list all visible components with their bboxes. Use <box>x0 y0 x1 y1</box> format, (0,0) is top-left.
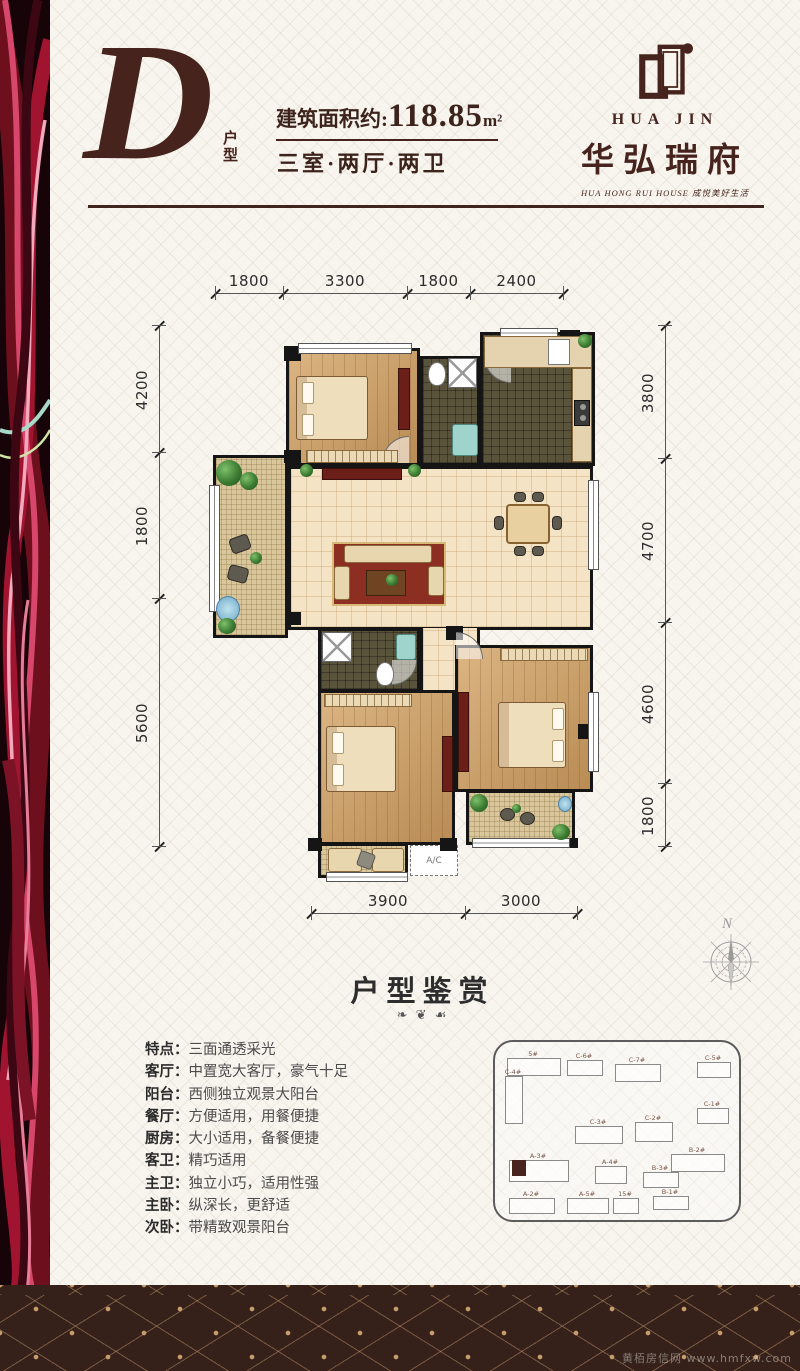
toilet-icon <box>376 662 394 686</box>
dim-line <box>665 325 666 846</box>
dining-table <box>506 504 550 544</box>
dresser <box>442 736 453 792</box>
dim-ext <box>658 622 672 623</box>
pond-icon <box>558 796 572 812</box>
vanity-icon <box>396 634 416 660</box>
feature-label: 主卧： <box>145 1198 189 1214</box>
dim-ext <box>152 325 166 326</box>
feature-row: 客卫：精巧适用 <box>145 1149 475 1171</box>
feature-label: 餐厅： <box>145 1109 189 1125</box>
siteplan-building-label: C-7# <box>629 1056 645 1064</box>
dim-label: 3800 <box>639 369 657 417</box>
left-art-strip <box>0 0 50 1300</box>
dim-label: 4600 <box>639 680 657 728</box>
siteplan-building <box>653 1196 689 1210</box>
wall-block <box>286 612 301 625</box>
siteplan-building-label: A-2# <box>523 1190 539 1198</box>
tv-cabinet <box>398 368 410 430</box>
feature-text: 独立小巧，适用性强 <box>189 1176 320 1192</box>
balcony-seat <box>372 848 404 872</box>
dim-ext <box>658 846 672 847</box>
dresser <box>458 692 469 772</box>
unit-type-letter: D <box>83 18 214 186</box>
plant-icon <box>240 472 258 490</box>
dimension-right: 3800470046001800 <box>648 325 676 846</box>
siteplan-building-label: C-2# <box>645 1114 661 1122</box>
siteplan-building <box>697 1108 729 1124</box>
feature-text: 方便适用，用餐便捷 <box>189 1109 320 1125</box>
feature-row: 次卧：带精致观景阳台 <box>145 1216 475 1238</box>
pillow <box>302 414 314 436</box>
siteplan-building-label: C-6# <box>576 1052 592 1060</box>
huajin-logo-icon <box>630 38 700 108</box>
pillow <box>552 740 564 762</box>
brand-name-en: HUA JIN <box>560 111 770 129</box>
siteplan-building <box>697 1062 731 1078</box>
siteplan-building-label: A-4# <box>602 1158 618 1166</box>
plant-icon <box>512 804 521 813</box>
siteplan-building <box>643 1172 679 1188</box>
dim-label: 1800 <box>407 272 470 290</box>
kitchen-counter <box>484 336 592 368</box>
dim-label: 4700 <box>639 517 657 565</box>
sofa-side <box>334 566 350 600</box>
dining-chair <box>514 546 526 556</box>
siteplan-building-label: C-5# <box>705 1054 721 1062</box>
area-prefix: 建筑面积约: <box>276 107 388 131</box>
window <box>588 480 599 570</box>
feature-label: 主卫： <box>145 1176 189 1192</box>
wardrobe <box>324 694 412 707</box>
siteplan-building-label: C-3# <box>590 1118 606 1126</box>
plant-icon <box>408 464 421 477</box>
window <box>472 838 570 848</box>
feature-text: 中置宽大客厅，豪气十足 <box>189 1064 349 1080</box>
dining-chair <box>514 492 526 502</box>
plant-icon <box>218 618 236 634</box>
ornament-flourish: ❧ ❦ ☙ <box>75 1008 770 1023</box>
siteplan-building <box>615 1064 661 1082</box>
dimension-left: 420018005600 <box>142 325 170 846</box>
balcony-chair <box>520 812 535 825</box>
dim-label: 1800 <box>639 792 657 840</box>
window <box>209 485 220 612</box>
plant-icon <box>470 794 488 812</box>
dining-chair <box>552 516 562 530</box>
layout-text: 三室·两厅·两卫 <box>277 146 448 178</box>
dim-ext <box>563 286 564 300</box>
siteplan-building <box>509 1198 555 1214</box>
dim-label: 1800 <box>215 272 283 290</box>
siteplan-building <box>671 1154 725 1172</box>
toilet-icon <box>428 362 446 386</box>
pillow <box>332 764 344 786</box>
siteplan-building <box>567 1060 603 1076</box>
feature-label: 特点： <box>145 1042 189 1058</box>
dim-label: 4200 <box>133 366 151 414</box>
header-divider <box>88 205 764 208</box>
feature-text: 带精致观景阳台 <box>189 1220 291 1236</box>
dim-label: 1800 <box>133 502 151 550</box>
section-title: 户型鉴赏 <box>75 968 770 1010</box>
window <box>588 692 599 772</box>
siteplan-building-label: B-1# <box>662 1188 678 1196</box>
dim-label: 5600 <box>133 699 151 747</box>
dining-chair <box>494 516 504 530</box>
feature-label: 客厅： <box>145 1064 189 1080</box>
watermark: 黄栢房信网 www.hmfxw.com <box>622 1350 792 1366</box>
brand-block: HUA JIN 华弘瑞府 HUA HONG RUI HOUSE 成悦美好生活 <box>560 38 770 199</box>
wall-block <box>440 838 457 851</box>
dim-ext <box>658 325 672 326</box>
siteplan-building-label: C-1# <box>704 1100 720 1108</box>
plant-icon <box>386 574 398 586</box>
siteplan-building <box>613 1198 639 1214</box>
dim-label: 3900 <box>311 892 465 910</box>
pillow <box>332 732 344 754</box>
dimension-bottom: 39003000 <box>311 892 577 920</box>
fridge-icon <box>548 339 570 365</box>
footer-band: 黄栢房信网 www.hmfxw.com <box>0 1285 800 1371</box>
feature-label: 客卫： <box>145 1153 189 1169</box>
siteplan-building-label: A-5# <box>579 1190 595 1198</box>
feature-text: 纵深长，更舒适 <box>189 1198 291 1214</box>
dim-line <box>311 913 577 914</box>
siteplan-building-label: A-3# <box>530 1152 546 1160</box>
feature-label: 厨房： <box>145 1131 189 1147</box>
sofa-main <box>344 545 432 563</box>
dimension-top: 1800330018002400 <box>215 272 577 300</box>
siteplan-building-label: B-2# <box>689 1146 705 1154</box>
dim-label: 2400 <box>470 272 563 290</box>
stove-icon <box>574 400 590 426</box>
dim-ext <box>152 598 166 599</box>
area-underline <box>276 139 498 141</box>
feature-row: 主卫：独立小巧，适用性强 <box>145 1172 475 1194</box>
dining-chair <box>532 492 544 502</box>
dim-ext <box>658 458 672 459</box>
vanity-icon <box>452 424 478 456</box>
plant-icon <box>300 464 313 477</box>
pillow <box>302 382 314 404</box>
siteplan-building-label: 5# <box>528 1050 538 1058</box>
wardrobe <box>500 648 588 661</box>
wall-block <box>284 450 301 463</box>
abstract-art <box>0 0 50 1300</box>
window <box>298 343 412 354</box>
dining-chair <box>532 546 544 556</box>
dim-line <box>159 325 160 846</box>
feature-text: 西侧独立观景大阳台 <box>189 1087 320 1103</box>
siteplan-building <box>595 1166 627 1184</box>
siteplan-building-label: 15# <box>618 1190 632 1198</box>
feature-row: 客厅：中置宽大客厅，豪气十足 <box>145 1060 475 1082</box>
dim-ext <box>577 906 578 920</box>
dim-line <box>215 293 563 294</box>
area-block: 建筑面积约:118.85m² <box>276 98 502 135</box>
plant-icon <box>250 552 262 564</box>
brand-name-cn: 华弘瑞府 <box>560 133 770 181</box>
plant-icon <box>552 824 570 840</box>
siteplan-building <box>575 1126 623 1144</box>
plant-icon <box>216 460 242 486</box>
siteplan-building <box>567 1198 609 1214</box>
siteplan-building <box>505 1076 523 1124</box>
dim-label: 3300 <box>283 272 407 290</box>
siteplan-building-highlighted <box>512 1160 526 1176</box>
feature-text: 三面通透采光 <box>189 1042 276 1058</box>
siteplan-building-label: B-3# <box>652 1164 668 1172</box>
area-unit: m² <box>483 111 502 130</box>
dim-ext <box>152 846 166 847</box>
shower-icon <box>448 358 477 388</box>
unit-type-label: 户型 <box>221 130 239 164</box>
pillow <box>552 708 564 730</box>
dim-ext <box>658 783 672 784</box>
area-value: 118.85 <box>388 98 483 134</box>
feature-row: 阳台：西侧独立观景大阳台 <box>145 1083 475 1105</box>
shower-icon <box>322 632 352 662</box>
feature-row: 厨房：大小适用，备餐便捷 <box>145 1127 475 1149</box>
plant-icon <box>578 334 592 348</box>
window <box>326 872 408 882</box>
feature-row: 特点：三面通透采光 <box>145 1038 475 1060</box>
feature-label: 次卧： <box>145 1220 189 1236</box>
feature-row: 主卧：纵深长，更舒适 <box>145 1194 475 1216</box>
siteplan-building <box>635 1122 673 1142</box>
dim-label: 3000 <box>465 892 577 910</box>
brand-tagline: HUA HONG RUI HOUSE 成悦美好生活 <box>560 187 770 199</box>
siteplan-box: 5#C-6#C-7#C-5#C-4#C-1#C-3#C-2#A-3#A-4#B-… <box>493 1040 741 1222</box>
wardrobe <box>306 450 398 463</box>
feature-label: 阳台： <box>145 1087 189 1103</box>
dim-ext <box>152 452 166 453</box>
feature-text: 大小适用，备餐便捷 <box>189 1131 320 1147</box>
sofa-side <box>428 566 444 596</box>
feature-list: 特点：三面通透采光客厅：中置宽大客厅，豪气十足阳台：西侧独立观景大阳台餐厅：方便… <box>145 1038 475 1239</box>
feature-text: 精巧适用 <box>189 1153 247 1169</box>
siteplan-building-label: C-4# <box>505 1068 521 1076</box>
compass-north-label: N <box>722 916 732 933</box>
wall-block <box>308 838 322 851</box>
feature-row: 餐厅：方便适用，用餐便捷 <box>145 1105 475 1127</box>
tv-console <box>322 468 402 480</box>
